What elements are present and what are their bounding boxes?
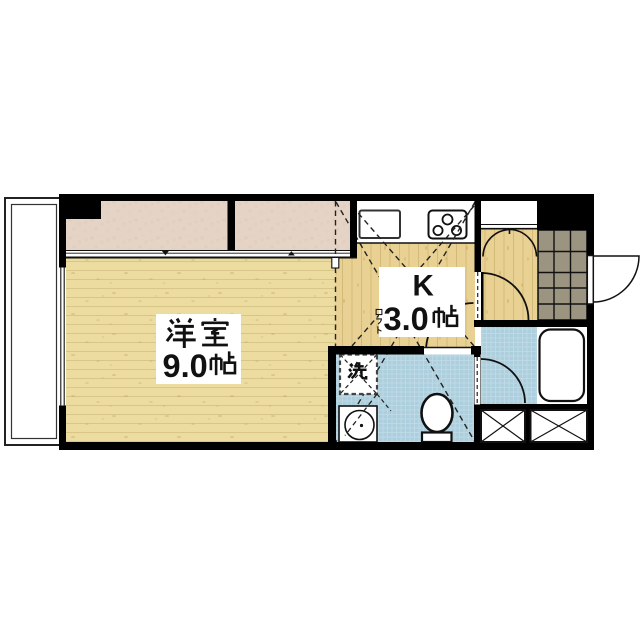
svg-text:3.0: 3.0 [384, 301, 429, 337]
svg-text:K: K [413, 270, 435, 303]
svg-text:9.0: 9.0 [163, 348, 208, 384]
